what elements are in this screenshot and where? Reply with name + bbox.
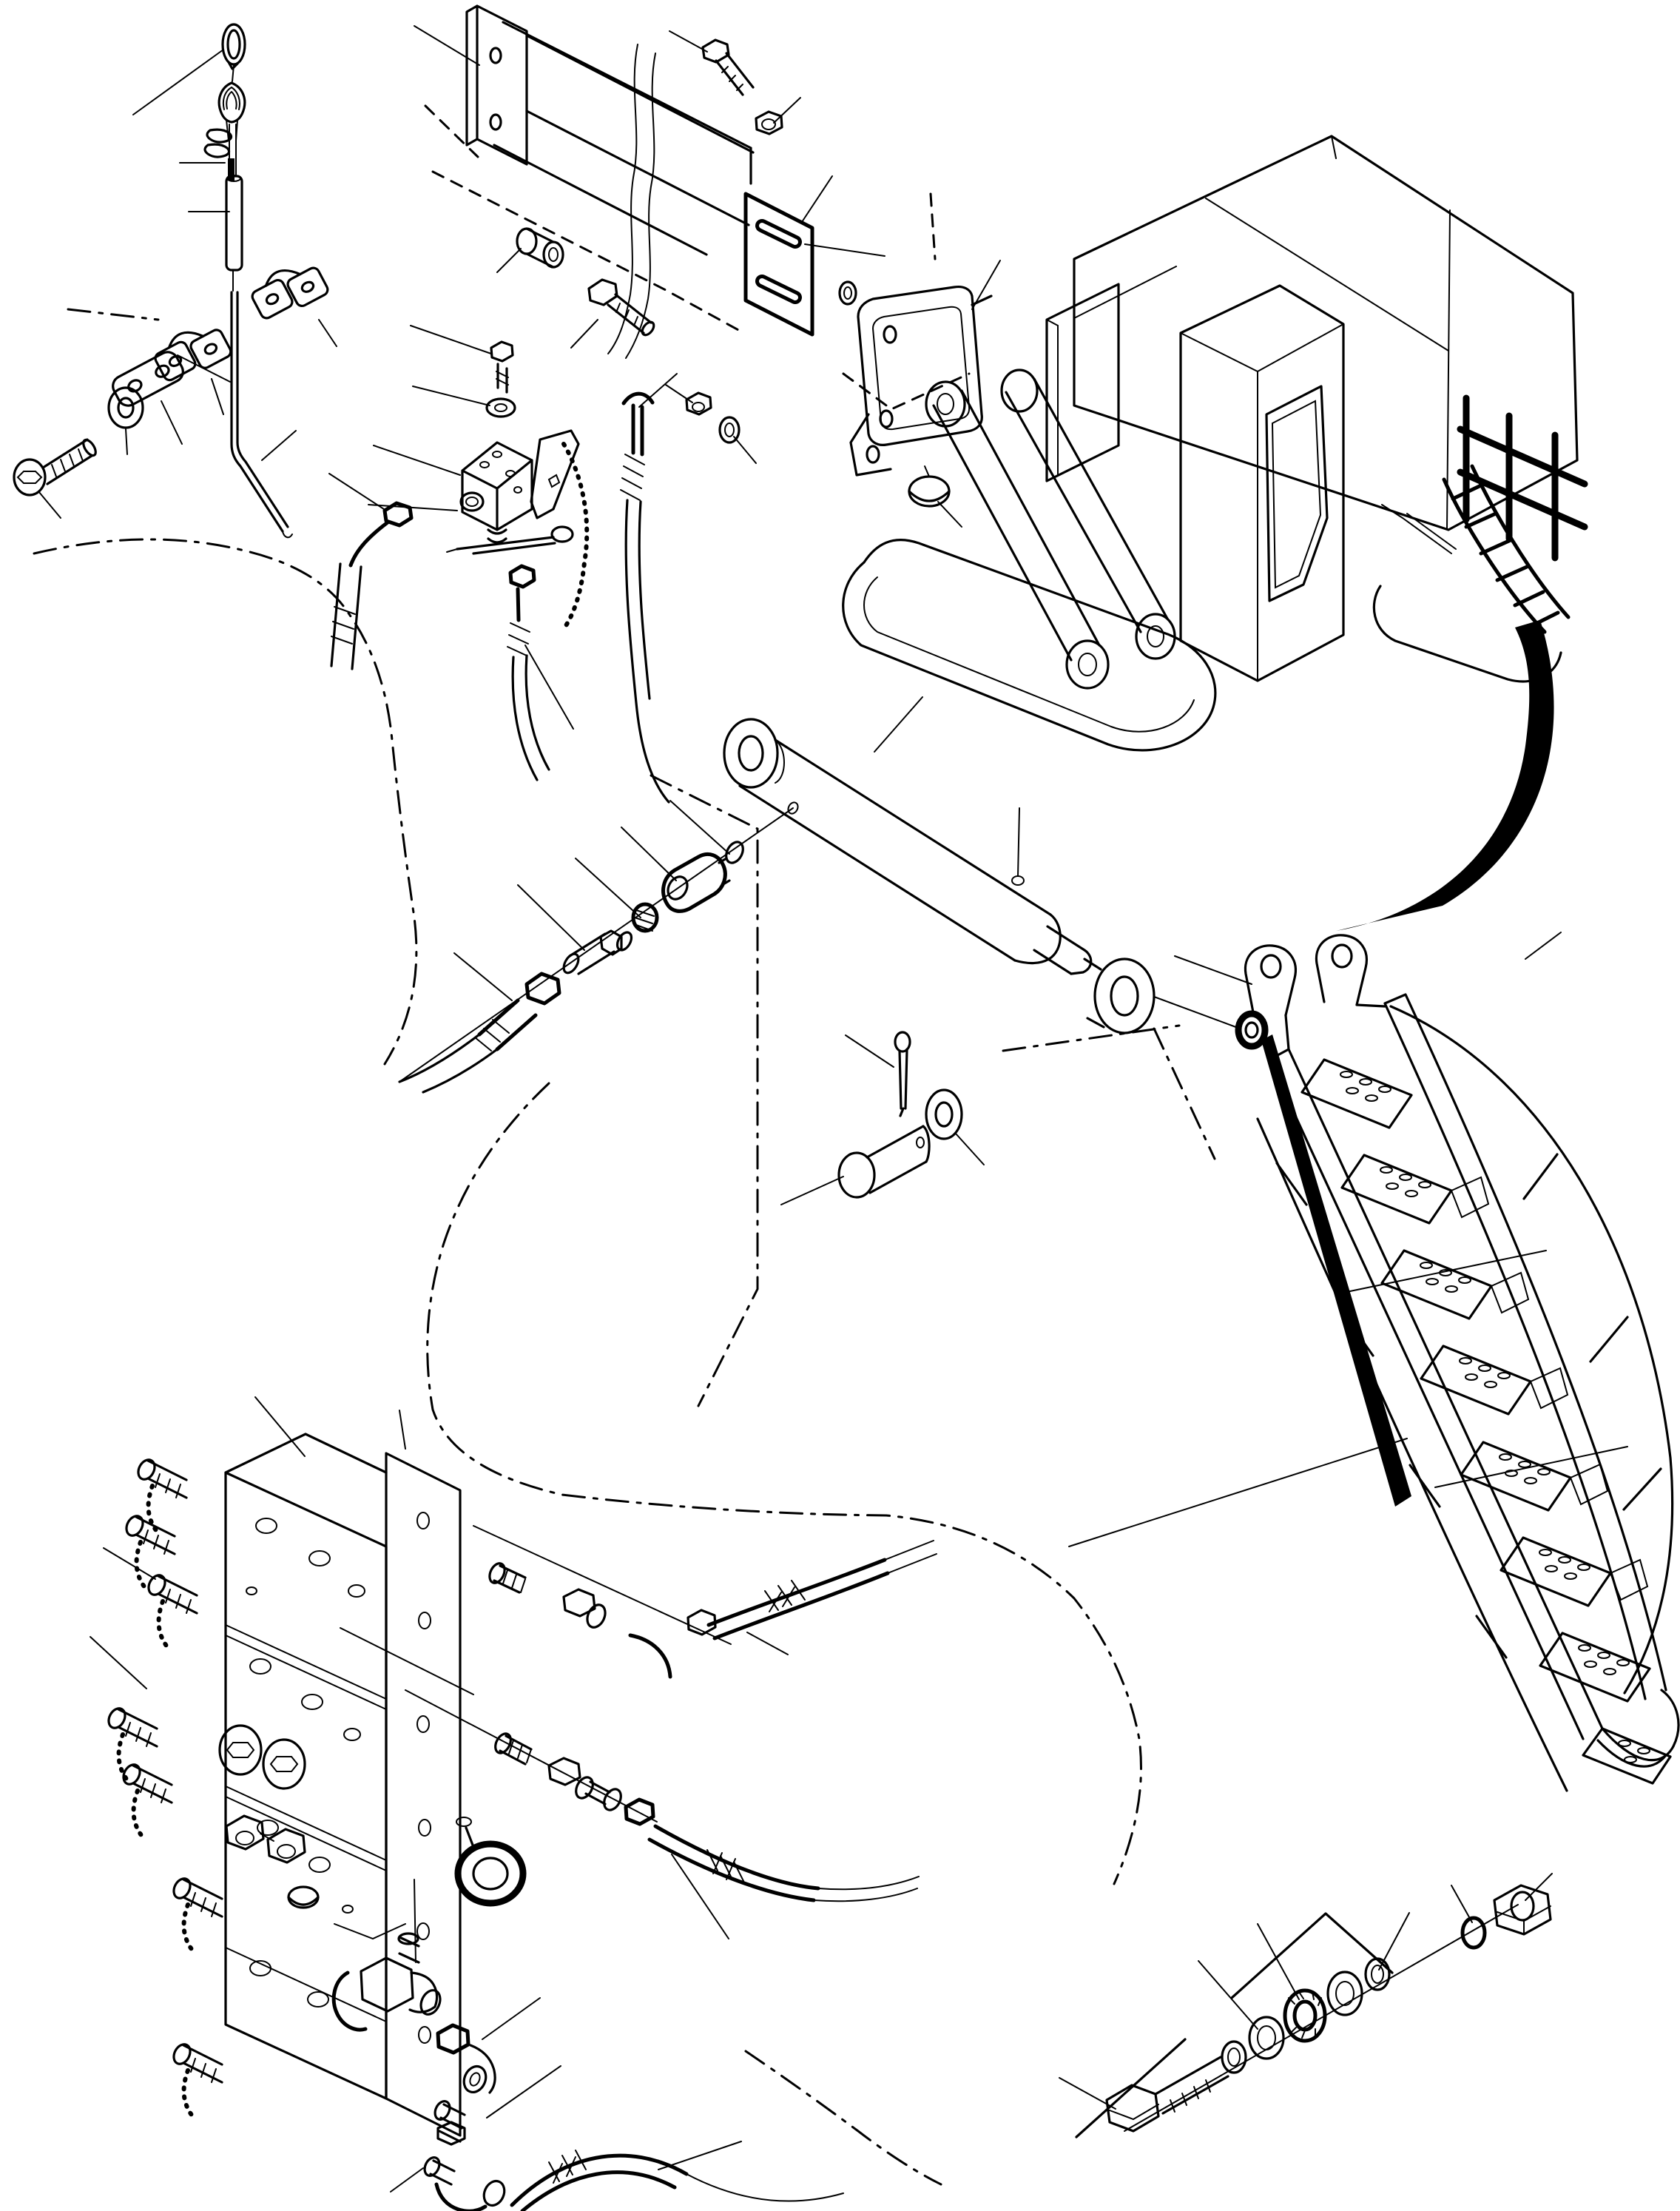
test-coupling bbox=[146, 1572, 197, 1649]
union-adapter bbox=[564, 1589, 609, 1630]
test-couplings bbox=[106, 1457, 222, 2118]
seal-washer bbox=[840, 282, 856, 304]
feed-hose-tail bbox=[686, 2174, 843, 2201]
hex-nut bbox=[756, 112, 782, 134]
parts-diagram-canvas bbox=[0, 0, 1680, 2211]
tee-axis bbox=[334, 1879, 416, 1962]
group-pull-cable bbox=[14, 24, 337, 537]
feed-hose bbox=[512, 2156, 686, 2211]
leader-lines bbox=[38, 50, 337, 518]
bearing-washer bbox=[1249, 2017, 1283, 2059]
seal-washer-hole bbox=[844, 287, 851, 299]
button-plug bbox=[909, 466, 949, 506]
tee-fitting bbox=[334, 1934, 444, 2030]
manifold-side-plate bbox=[386, 1453, 460, 2136]
port-plug bbox=[664, 854, 729, 911]
drop-elbow bbox=[422, 2155, 508, 2211]
frame-corner-lines bbox=[1076, 1914, 1392, 2137]
stair-step bbox=[1461, 1442, 1608, 1510]
plate-hole bbox=[419, 1820, 431, 1836]
cable-sleeve bbox=[226, 176, 242, 270]
mounting-lug bbox=[1316, 935, 1366, 1005]
hose-end-fitting bbox=[399, 974, 559, 1092]
valve-washer-hole bbox=[495, 404, 507, 411]
clamp-bracket bbox=[851, 287, 991, 475]
linch-pin bbox=[447, 527, 573, 553]
stair-step bbox=[1583, 1729, 1670, 1783]
elbow-union bbox=[630, 1610, 715, 1677]
group-tee-set bbox=[334, 1879, 843, 2211]
hose-tail-upper bbox=[885, 1541, 937, 1573]
rod-end-eye bbox=[1084, 959, 1154, 1033]
boom-link-arm bbox=[926, 382, 1108, 688]
wire-clip bbox=[205, 144, 229, 157]
group-routing bbox=[34, 309, 1141, 2184]
test-coupling bbox=[171, 1876, 222, 1952]
foot-handle bbox=[1598, 1690, 1679, 1766]
hose-tail-lower bbox=[814, 1877, 919, 1901]
test-coupling bbox=[121, 1762, 172, 1838]
group-anchor-set bbox=[1059, 1874, 1552, 2137]
hex-bolt-upper bbox=[703, 40, 753, 95]
manifold-nut bbox=[260, 1829, 305, 1862]
spacer-bush bbox=[517, 229, 563, 267]
group-shutoff-valve bbox=[329, 326, 677, 802]
machine-body-edges bbox=[1074, 136, 1450, 528]
bearing-washer-hole bbox=[1258, 2026, 1275, 2050]
diagram-page bbox=[0, 0, 1680, 2211]
pin-washer bbox=[926, 1090, 962, 1139]
elbow-hose-fitting bbox=[331, 503, 411, 669]
union-axes bbox=[340, 1526, 731, 1822]
group-machine bbox=[843, 136, 1585, 931]
side-panel-edge bbox=[1047, 320, 1058, 475]
construction-dashes bbox=[651, 775, 1215, 1406]
flange-hole bbox=[490, 115, 501, 129]
thimble-wire bbox=[223, 87, 240, 110]
plate-hole bbox=[417, 1923, 429, 1939]
clamp-half-upper bbox=[247, 255, 330, 326]
phantom-stub bbox=[68, 309, 158, 320]
clevis-pin bbox=[839, 1126, 929, 1197]
group-beam-mount bbox=[414, 6, 1000, 527]
hose-adapter bbox=[561, 930, 634, 975]
bearing-washer bbox=[1328, 1972, 1362, 2015]
mounting-lug bbox=[1245, 946, 1295, 1015]
straight-nipple bbox=[487, 1561, 525, 1592]
stair-steps bbox=[1302, 1060, 1670, 1783]
test-coupling bbox=[171, 2042, 222, 2118]
valve-block bbox=[461, 442, 532, 542]
manifold-washer bbox=[263, 1740, 305, 1788]
lifting-eye bbox=[456, 1817, 523, 1903]
group-stairway bbox=[1069, 932, 1679, 1791]
valve-bolt bbox=[491, 342, 513, 392]
leader-lines bbox=[414, 26, 1000, 527]
straight-nipple bbox=[492, 1731, 531, 1764]
socket-head-cap-screw bbox=[14, 438, 98, 495]
plate-hole bbox=[417, 1512, 429, 1529]
bearing-ring bbox=[1285, 1990, 1325, 2041]
fitting-axis bbox=[399, 808, 793, 1082]
manifold-nut bbox=[226, 1816, 263, 1849]
slotted-wear-plate bbox=[746, 194, 812, 334]
cylinder-barrel bbox=[724, 719, 1060, 963]
pivot-eye bbox=[1238, 1014, 1265, 1046]
release-rod bbox=[232, 292, 288, 531]
backing-ring-hole bbox=[1372, 1965, 1383, 1983]
stair-step bbox=[1501, 1538, 1647, 1606]
support-beam bbox=[494, 22, 753, 255]
thin-ring bbox=[1463, 1918, 1485, 1948]
handrail-left bbox=[1258, 1119, 1567, 1791]
lock-nut-hole bbox=[692, 403, 704, 411]
braided-hose-upper bbox=[709, 1560, 888, 1638]
phantom-route-upper bbox=[34, 539, 416, 1064]
hex-nut-hole bbox=[762, 119, 775, 129]
hose-drop bbox=[507, 566, 549, 780]
test-coupling bbox=[106, 1706, 157, 1782]
valve-washer bbox=[487, 399, 515, 417]
hose-nut bbox=[626, 1800, 653, 1824]
group-manifold bbox=[90, 1397, 523, 2136]
phantom-route-feed bbox=[746, 2051, 941, 2184]
bearing-washer-hole bbox=[1336, 1982, 1354, 2005]
operator-cab bbox=[1181, 286, 1343, 681]
flat-washer-hole bbox=[725, 423, 734, 437]
hose-rear bbox=[626, 500, 669, 802]
cotter-pin bbox=[895, 1032, 910, 1116]
spring-ring-hole bbox=[1228, 2048, 1240, 2066]
hose-rear-braid bbox=[621, 454, 644, 500]
plain-washer-hole bbox=[118, 398, 133, 417]
rod-tip-hook bbox=[283, 531, 292, 537]
group-hose-unions bbox=[340, 1526, 937, 1939]
plate-hole bbox=[419, 1612, 431, 1629]
pull-ring-inner bbox=[228, 30, 240, 58]
flange-hole bbox=[490, 48, 501, 63]
test-coupling bbox=[124, 1513, 175, 1589]
retainer-bracket bbox=[531, 431, 578, 518]
protective-cap bbox=[289, 1887, 318, 1908]
large-lock-nut bbox=[1494, 1885, 1551, 1934]
plate-hole bbox=[419, 2027, 431, 2043]
plain-washer bbox=[109, 388, 143, 428]
piston-rod bbox=[1034, 926, 1091, 974]
stair-step bbox=[1540, 1633, 1650, 1701]
stair-step bbox=[1302, 1060, 1411, 1128]
group-cylinder bbox=[399, 697, 1215, 1406]
plate-hole bbox=[417, 1716, 429, 1732]
swing-arrow bbox=[1336, 620, 1554, 931]
grease-nipple bbox=[1012, 808, 1024, 885]
hose-rear-elbow bbox=[624, 394, 652, 454]
